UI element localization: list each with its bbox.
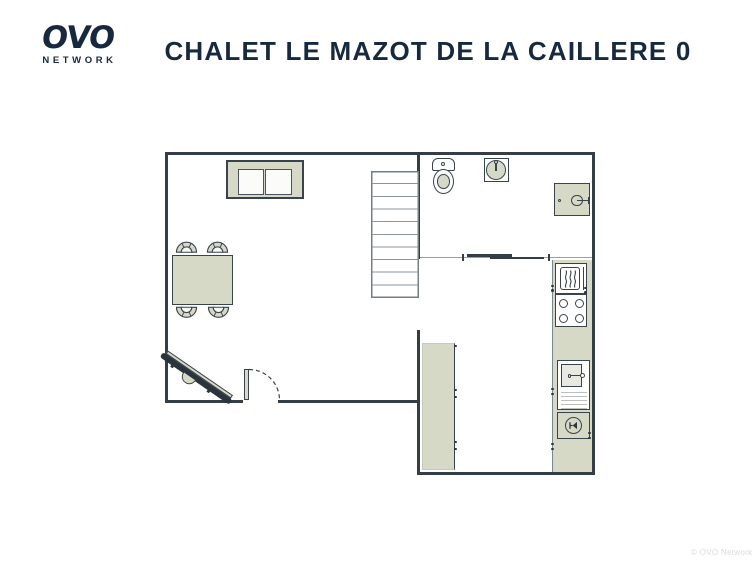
cabinet-handle-dot [584,291,587,294]
cabinet-handle-dot [454,345,457,348]
sofa-seat-left [238,169,264,196]
washbasin-tap-spout [495,164,496,171]
stove-burner [559,299,568,308]
dining-chair [206,236,229,254]
washing-machine-hinge [588,197,590,205]
sink-drainer-line [561,396,587,397]
cabinet-handle-dot [454,441,457,444]
sliding-door-panel [490,257,544,260]
sliding-door-stop-right [548,254,550,261]
dining-chair [175,236,198,254]
sink-drainer-line [561,400,587,401]
wall-right [592,152,595,475]
wall-center-lower [417,330,420,475]
cabinet-handle-dot [454,396,457,399]
stove-burner [575,299,584,308]
kitchen-island [422,343,455,470]
sink-drainer-line [561,392,587,393]
floor-plan [0,0,756,567]
cabinet-handle-dot [454,448,457,451]
sink-drainer-line [561,408,587,409]
tv-foot [170,364,174,368]
tv-foot [206,389,210,393]
copyright-watermark: © OVO Network [691,548,752,557]
door-swing-arc [243,367,283,403]
sink-drainer-line [561,404,587,405]
toilet-bowl-inner [437,174,450,189]
sofa [226,160,304,199]
tv-stand [165,350,232,398]
kitchen-sink-tap-base [580,373,585,378]
dining-chair [175,306,198,324]
sofa-seat-right [265,169,292,196]
wall-bottom-living-right [278,400,420,403]
wall-bottom-kitchen [417,472,596,475]
staircase [371,171,419,298]
wall-top [165,152,595,155]
wine-glass-icon [568,420,579,431]
stove-burner [575,314,584,323]
cabinet-handle-dot [454,389,457,392]
cabinet-handle-dot [584,287,587,290]
cabinet-handle-dot [551,289,554,292]
floor-plan-page: OVO NETWORK CHALET LE MAZOT DE LA CAILLE… [0,0,756,567]
oven-heat-waves-icon [564,270,577,288]
sliding-door-stop-left [462,254,464,261]
stove-burner [559,314,568,323]
tv-screen [159,352,231,404]
dining-chair [207,306,230,324]
dining-table [172,255,233,305]
